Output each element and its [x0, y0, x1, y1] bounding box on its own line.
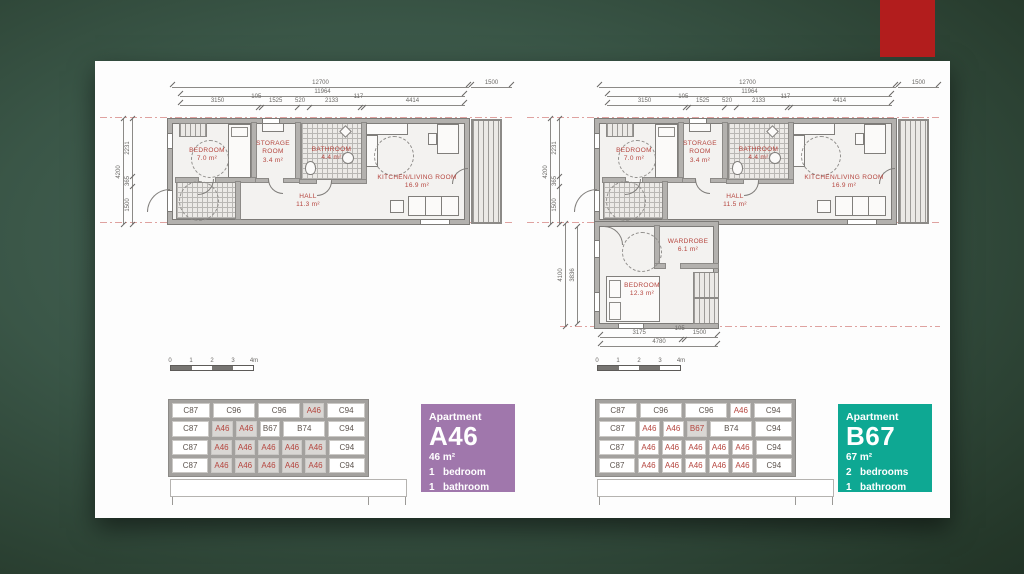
unit-cell-c87: C87 [599, 440, 635, 455]
dim-value: 520 [722, 98, 732, 104]
dim-value: 1525 [269, 98, 282, 104]
room-label-bedroom2: BEDROOM 12.3 m² [612, 282, 672, 299]
elevation-row: C87A46A46A46A46A46C94 [172, 440, 365, 455]
window [595, 292, 599, 312]
chair [855, 133, 864, 145]
dim-value: 105 [675, 326, 685, 332]
room-name: STORAGE ROOM [675, 140, 725, 157]
scale-label: 1 [616, 358, 619, 364]
room-label-kitchen-living: KITCHEN/LIVING ROOM 16.9 m² [795, 174, 893, 191]
turning-circle [374, 136, 414, 176]
room-label-storage: STORAGE ROOM 3.4 m² [248, 140, 298, 165]
room-area: 3.4 m² [248, 157, 298, 165]
partition [332, 180, 366, 183]
window [262, 119, 280, 123]
unit-cell-c87: C87 [599, 421, 636, 436]
balcony [898, 119, 929, 224]
partition [727, 180, 743, 183]
unit-cell-a46: A46 [235, 440, 256, 455]
card-area: 67 m² [846, 452, 924, 463]
unit-cell-c94: C94 [327, 403, 365, 418]
room-type: bathroom [860, 482, 906, 493]
scale-label: 0 [168, 358, 171, 364]
unit-cell-a46: A46 [211, 440, 232, 455]
scale-label: 0 [595, 358, 598, 364]
elevation-row: C87C96C96A46C94 [599, 403, 792, 418]
dim-value: 365 [125, 176, 131, 186]
room-label-bathroom: BATHROOM 4.4 m² [301, 146, 362, 163]
unit-cell-a46: A46 [212, 421, 233, 436]
dim-value: 3150 [638, 98, 651, 104]
toilet [732, 161, 743, 175]
unit-cell-c94: C94 [329, 440, 365, 455]
partition [284, 179, 300, 182]
shelf [262, 123, 284, 132]
dim-value: 4100 [558, 268, 564, 281]
window [847, 220, 877, 224]
unit-cell-c96: C96 [258, 403, 300, 418]
unit-cell-c87: C87 [599, 403, 637, 418]
scale-label: 3 [231, 358, 234, 364]
wardrobe-unit [606, 123, 634, 137]
unit-cell-b74: B74 [283, 421, 325, 436]
unit-cell-c94: C94 [756, 458, 792, 473]
balcony [471, 119, 502, 224]
unit-cell-c87: C87 [599, 458, 635, 473]
room-name: BEDROOM [603, 147, 665, 155]
axis-line [527, 117, 939, 118]
elevation-grid-a46: C87C96C96A46C94C87A46A46B67B74C94C87A46A… [168, 399, 369, 477]
partition [681, 264, 718, 268]
dim-value: 1500 [552, 198, 558, 211]
room-name: WARDROBE [660, 238, 716, 246]
room-name: BEDROOM [176, 147, 238, 155]
sofa [835, 196, 886, 216]
apartment-card-b67: Apartment B67 67 m² 2bedrooms 1bathroom [838, 404, 932, 492]
dim-value: 12700 [172, 80, 469, 86]
window [618, 324, 644, 328]
unit-cell-c94: C94 [754, 403, 792, 418]
dim-value: 1525 [696, 98, 709, 104]
room-label-wardrobe: WARDROBE 6.1 m² [660, 238, 716, 255]
count: 1 [429, 482, 443, 493]
window [689, 119, 707, 123]
slide-background: 12700 1500 11964 31501051525520213311744… [0, 0, 1024, 574]
room-area: 12.3 m² [612, 290, 672, 298]
dim-value: 2133 [325, 98, 338, 104]
dim-value: 2133 [752, 98, 765, 104]
dim-vertical-overall: 4200 [114, 119, 124, 224]
dim-value: 520 [295, 98, 305, 104]
scale-label: 3 [658, 358, 661, 364]
unit-cell-a46: A46 [235, 458, 256, 473]
partition [759, 180, 793, 183]
room-area: 11.3 m² [278, 201, 338, 209]
count: 1 [846, 482, 860, 493]
unit-cell-a46: A46 [685, 458, 706, 473]
unit-cell-a46: A46 [258, 458, 279, 473]
scale-label: 2 [210, 358, 213, 364]
unit-cell-a46: A46 [282, 458, 303, 473]
dim-value: 4200 [543, 165, 549, 178]
unit-cell-a46: A46 [709, 440, 730, 455]
dim-value: 3150 [211, 98, 224, 104]
dim-value: 105 [678, 94, 688, 100]
dim-segments: 31751051500 [600, 329, 718, 338]
elevation-row: C87A46A46A46A46A46C94 [172, 458, 365, 473]
dim-value: 117 [354, 94, 364, 100]
room-area: 16.9 m² [368, 182, 466, 190]
room-area: 7.0 m² [176, 155, 238, 163]
card-row: 1bathroom [846, 482, 924, 493]
card-code: A46 [429, 423, 507, 450]
unit-cell-b74: B74 [710, 421, 752, 436]
count: 2 [846, 467, 860, 478]
dim-vertical-overall: 4200 [541, 119, 551, 224]
unit-cell-a46: A46 [303, 403, 324, 418]
elevation-leg [368, 497, 369, 505]
unit-cell-c94: C94 [329, 458, 365, 473]
dim-vertical-segments: 22313651500 [126, 119, 136, 224]
window [595, 240, 599, 258]
scale-label: 4m [250, 358, 258, 364]
wardrobe-unit [693, 272, 719, 298]
unit-cell-c87: C87 [172, 458, 208, 473]
dim-value: 12700 [599, 80, 896, 86]
partition [236, 182, 240, 219]
dim-overall: 12700 [599, 80, 896, 88]
room-area: 7.0 m² [603, 155, 665, 163]
desk [437, 124, 459, 154]
elevation-base [597, 479, 834, 497]
elevation-leg [599, 497, 600, 505]
elevation-leg [795, 497, 796, 505]
room-name: KITCHEN/LIVING ROOM [795, 174, 893, 182]
unit-cell-c94: C94 [755, 421, 792, 436]
dim-value: 4780 [600, 339, 718, 345]
dim-balcony: 1500 [471, 80, 512, 88]
turning-circle [622, 232, 662, 272]
unit-cell-a46: A46 [662, 458, 683, 473]
room-area: 3.4 m² [675, 157, 725, 165]
partition [711, 179, 727, 182]
room-name: HALL [278, 193, 338, 201]
dim-value: 2231 [552, 141, 558, 154]
room-area: 4.4 m² [728, 154, 789, 162]
unit-cell-c96: C96 [213, 403, 255, 418]
window [595, 133, 599, 149]
dim-value: 4414 [833, 98, 846, 104]
elevation-leg [405, 497, 406, 505]
card-row: 1bathroom [429, 482, 507, 493]
coffee-table [390, 200, 404, 213]
room-name: BATHROOM [301, 146, 362, 154]
unit-cell-a46: A46 [305, 458, 326, 473]
sofa [408, 196, 459, 216]
dim-value: 365 [552, 176, 558, 186]
dim-value: 1500 [693, 330, 706, 336]
room-label-bathroom: BATHROOM 4.4 m² [728, 146, 789, 163]
desk [864, 124, 886, 154]
unit-cell-a46: A46 [282, 440, 303, 455]
entry-door [595, 190, 599, 212]
entry-door [168, 190, 172, 212]
room-label-kitchen-living: KITCHEN/LIVING ROOM 16.9 m² [368, 174, 466, 191]
room-name: KITCHEN/LIVING ROOM [368, 174, 466, 182]
partition [300, 180, 316, 183]
room-name: STORAGE ROOM [248, 140, 298, 157]
kitchen-counter [793, 123, 835, 135]
apartment-card-a46: Apartment A46 46 m² 1bedroom 1bathroom [421, 404, 515, 492]
dim-value: 4414 [406, 98, 419, 104]
card-code: B67 [846, 423, 924, 450]
unit-cell-a46: A46 [732, 440, 753, 455]
coffee-table [817, 200, 831, 213]
unit-cell-c87: C87 [172, 440, 208, 455]
window [168, 133, 172, 149]
unit-cell-a46: A46 [638, 440, 659, 455]
elevation-base [170, 479, 407, 497]
dim-value: 4200 [116, 165, 122, 178]
dim-value: 11964 [180, 89, 465, 95]
room-type: bedroom [443, 467, 486, 478]
scale-label: 2 [637, 358, 640, 364]
unit-cell-a46: A46 [305, 440, 326, 455]
dim-vertical-inner: 3836 [568, 227, 578, 323]
dim-inner: 11964 [180, 89, 465, 97]
partition [683, 179, 695, 182]
unit-cell-c87: C87 [172, 421, 209, 436]
unit-cell-a46: A46 [211, 458, 232, 473]
room-label-bedroom: BEDROOM 7.0 m² [603, 147, 665, 164]
unit-cell-a46: A46 [258, 440, 279, 455]
scale-label: 1 [189, 358, 192, 364]
axis-line [100, 117, 512, 118]
unit-cell-a46: A46 [732, 458, 753, 473]
unit-cell-a46: A46 [662, 440, 683, 455]
dim-balcony: 1500 [898, 80, 939, 88]
unit-cell-a46: A46 [663, 421, 684, 436]
unit-cell-a46: A46 [685, 440, 706, 455]
scale-bar: 01234m [170, 358, 254, 371]
unit-cell-a46: A46 [639, 421, 660, 436]
unit-cell-b67: B67 [687, 421, 708, 436]
room-area: 6.1 m² [660, 246, 716, 254]
room-label-hall: HALL 11.3 m² [278, 193, 338, 210]
unit-cell-c96: C96 [685, 403, 727, 418]
room-area: 4.4 m² [301, 154, 362, 162]
elevation-row: C87C96C96A46C94 [172, 403, 365, 418]
unit-cell-a46: A46 [638, 458, 659, 473]
dim-value: 1500 [471, 80, 512, 86]
elevation-leg [832, 497, 833, 505]
turning-circle [801, 136, 841, 176]
dim-value: 11964 [607, 89, 892, 95]
elevation-row: C87A46A46A46A46A46C94 [599, 440, 792, 455]
kitchen-counter [366, 123, 408, 135]
elevation-leg [172, 497, 173, 505]
dim-segments: 3150105152552021331174414 [607, 97, 892, 106]
chair [428, 133, 437, 145]
unit-cell-a46: A46 [236, 421, 257, 436]
partition [663, 182, 667, 219]
elevation-row: C87A46A46B67B74C94 [172, 421, 365, 436]
scale-bar: 01234m [597, 358, 681, 371]
room-name: BATHROOM [728, 146, 789, 154]
unit-cell-a46: A46 [730, 403, 751, 418]
room-name: BEDROOM [612, 282, 672, 290]
unit-cell-c94: C94 [328, 421, 365, 436]
dim-overall: 12700 [172, 80, 469, 88]
shelf [689, 123, 711, 132]
card-row: 1bedroom [429, 467, 507, 478]
partition [256, 179, 268, 182]
unit-cell-c94: C94 [756, 440, 792, 455]
dim-value: 105 [251, 94, 261, 100]
dim-value: 1500 [898, 80, 939, 86]
room-area: 16.9 m² [795, 182, 893, 190]
room-type: bedrooms [860, 467, 908, 478]
room-type: bathroom [443, 482, 489, 493]
dim-value: 2231 [125, 141, 131, 154]
dim-value: 1500 [125, 198, 131, 211]
card-area: 46 m² [429, 452, 507, 463]
elevation-row: C87A46A46B67B74C94 [599, 421, 792, 436]
unit-cell-c96: C96 [640, 403, 682, 418]
dim-segments: 3150105152552021331174414 [180, 97, 465, 106]
card-row: 2bedrooms [846, 467, 924, 478]
room-name: HALL [705, 193, 765, 201]
dim-overall: 4780 [600, 339, 718, 347]
dim-vertical-segments: 22313651500 [553, 119, 563, 224]
accent-bar [880, 0, 935, 57]
dim-value: 117 [781, 94, 791, 100]
dim-vertical-overall: 4100 [556, 224, 566, 326]
room-label-bedroom: BEDROOM 7.0 m² [176, 147, 238, 164]
elevation-grid-b67: C87C96C96A46C94C87A46A46B67B74C94C87A46A… [595, 399, 796, 477]
scale-label: 4m [677, 358, 685, 364]
toilet [305, 161, 316, 175]
elevation-row: C87A46A46A46A46A46C94 [599, 458, 792, 473]
wardrobe-unit [179, 123, 207, 137]
count: 1 [429, 467, 443, 478]
room-label-hall: HALL 11.5 m² [705, 193, 765, 210]
unit-cell-b67: B67 [260, 421, 281, 436]
room-area: 11.5 m² [705, 201, 765, 209]
unit-cell-a46: A46 [709, 458, 730, 473]
dim-value: 3836 [570, 268, 576, 281]
unit-cell-c87: C87 [172, 403, 210, 418]
dim-inner: 11964 [607, 89, 892, 97]
dim-value: 3175 [633, 330, 646, 336]
window [420, 220, 450, 224]
room-label-storage: STORAGE ROOM 3.4 m² [675, 140, 725, 165]
wardrobe-unit [693, 298, 719, 324]
